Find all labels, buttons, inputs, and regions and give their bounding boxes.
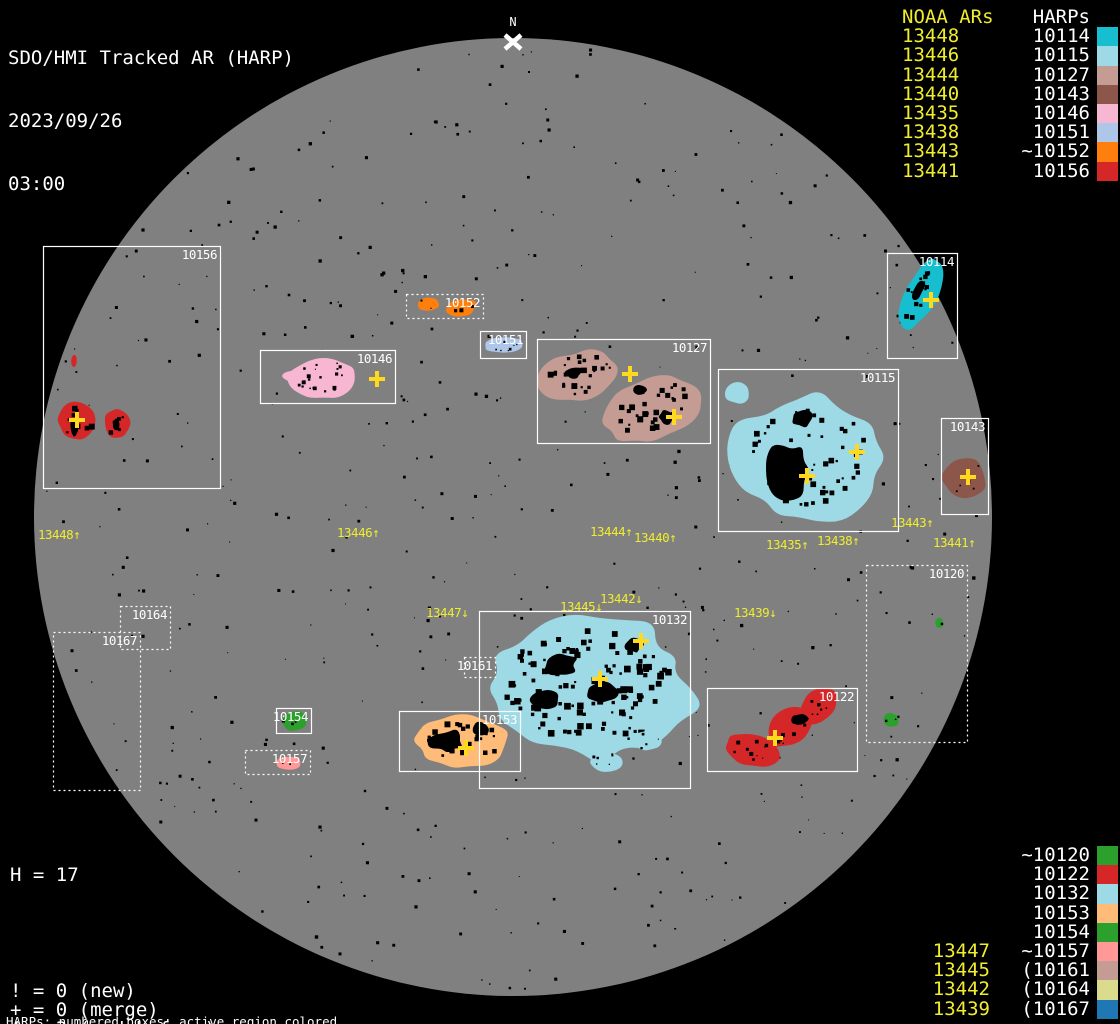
harp-box-label-10120: 10120 (929, 566, 964, 581)
harp-box-label-10127: 10127 (672, 340, 707, 355)
harp-box-label-10153: 10153 (482, 712, 517, 727)
legend-noaa-number: 13446 (902, 46, 1002, 65)
harp-box-label-10164: 10164 (132, 607, 167, 622)
harp-plot-canvas: 1015610152101511014610127101141011510143… (0, 0, 1120, 1024)
harp-box-label-10146: 10146 (357, 351, 392, 366)
legend-harp-number: 10127 (1002, 66, 1090, 85)
noaa-ar-label: 13448↑ (38, 527, 80, 542)
date-label: 2023/09/26 (8, 111, 294, 132)
legend-color-swatch (1097, 142, 1118, 161)
harp-box-label-10156: 10156 (182, 247, 217, 262)
legend-color-swatch (1097, 904, 1118, 923)
stats-gap (10, 924, 227, 943)
harp-box-label-10132: 10132 (652, 612, 687, 627)
noaa-ar-label: 13435↑ (766, 537, 808, 552)
legend-noaa-number (880, 904, 990, 923)
noaa-ar-label: 13440↑ (634, 530, 676, 545)
legend-color-swatch (1097, 980, 1118, 999)
page-title: SDO/HMI Tracked AR (HARP) (8, 48, 294, 69)
legend-row-10127: 1344410127 (902, 66, 1118, 85)
north-label: N (509, 15, 516, 29)
harp-box-label-10152: 10152 (445, 295, 480, 310)
legend-row-10152: 13443~10152 (902, 142, 1118, 161)
legend-noaa-number: 13439 (880, 1000, 990, 1019)
legend-harp-number: 10115 (1002, 46, 1090, 65)
legend-noaa-number: 13444 (902, 66, 1002, 85)
harp-box-label-10157: 10157 (272, 751, 307, 766)
legend-noaa-number (880, 865, 990, 884)
legend-color-swatch (1097, 1000, 1118, 1019)
legend-color-swatch (1097, 66, 1118, 85)
legend-row-10167: 13439(10167 (880, 1000, 1118, 1019)
legend-color-swatch (1097, 846, 1118, 865)
harp-count: H = 17 (10, 866, 227, 885)
legend-row-10153: 10153 (880, 904, 1118, 923)
legend-color-swatch (1097, 865, 1118, 884)
harp-box-label-10114: 10114 (919, 254, 954, 269)
noaa-ar-label: 13441↑ (933, 535, 975, 550)
legend-row-10164: 13442(10164 (880, 980, 1118, 999)
legend-color-swatch (1097, 46, 1118, 65)
noaa-ar-label: 13445↓ (560, 599, 602, 614)
noaa-ar-label: 13447↓ (426, 605, 468, 620)
legend-color-swatch (1097, 123, 1118, 142)
legend-color-swatch (1097, 884, 1118, 903)
legend-noaa-number: 13441 (902, 162, 1002, 181)
legend-color-swatch (1097, 104, 1118, 123)
legend-row-10115: 1344610115 (902, 46, 1118, 65)
harp-box-label-10154: 10154 (273, 709, 308, 724)
legend-color-swatch (1097, 27, 1118, 46)
region-speckles-10120a (941, 623, 944, 626)
legend-color-swatch (1097, 162, 1118, 181)
noaa-ar-label: 13444↑ (590, 524, 632, 539)
legend-noaa-number: 13443 (902, 142, 1002, 161)
legend-color-swatch (1097, 942, 1118, 961)
noaa-ar-label: 13446↑ (337, 525, 379, 540)
legend-color-swatch (1097, 85, 1118, 104)
noaa-ar-label: 13443↑ (891, 515, 933, 530)
legend-top: NOAA ARs HARPs 1344810114134461011513444… (902, 8, 1118, 181)
legend-color-swatch (1097, 923, 1118, 942)
legend-noaa-number (880, 846, 990, 865)
legend-row-10132: 10132 (880, 884, 1118, 903)
harp-box-label-10167: 10167 (102, 633, 137, 648)
legend-harp-number: (10164 (990, 980, 1090, 999)
footer-line-harps: HARPs: numbered boxes; active region col… (6, 1015, 443, 1024)
harp-box-label-10115: 10115 (860, 370, 895, 385)
active-region-blob-dp-10115a (766, 445, 808, 501)
legend-harp-number: (10167 (990, 1000, 1090, 1019)
time-label: 03:00 (8, 174, 294, 195)
noaa-ar-label: 13442↓ (600, 591, 642, 606)
legend-harp-number: 10132 (990, 884, 1090, 903)
noaa-ar-label: 13439↓ (734, 605, 776, 620)
legend-header-spacer (1097, 8, 1118, 27)
legend-harp-number: ~10152 (1002, 142, 1090, 161)
title-block: SDO/HMI Tracked AR (HARP) 2023/09/26 03:… (8, 6, 294, 237)
footer-notes: HARPs: numbered boxes; active region col… (6, 989, 443, 1024)
legend-bottom: ~101201012210132101531015413447~10157134… (880, 846, 1118, 1019)
legend-color-swatch (1097, 961, 1118, 980)
harp-box-label-10143: 10143 (950, 419, 985, 434)
legend-noaa-number (880, 884, 990, 903)
noaa-ar-label: 13438↑ (817, 533, 859, 548)
harp-box-label-10122: 10122 (819, 689, 854, 704)
legend-harp-number: 10156 (1002, 162, 1090, 181)
legend-noaa-number: 13442 (880, 980, 990, 999)
legend-harp-number: 10153 (990, 904, 1090, 923)
legend-row-10156: 1344110156 (902, 162, 1118, 181)
harp-box-label-10161: 10161 (457, 658, 492, 673)
harp-box-label-10151: 10151 (488, 332, 523, 347)
